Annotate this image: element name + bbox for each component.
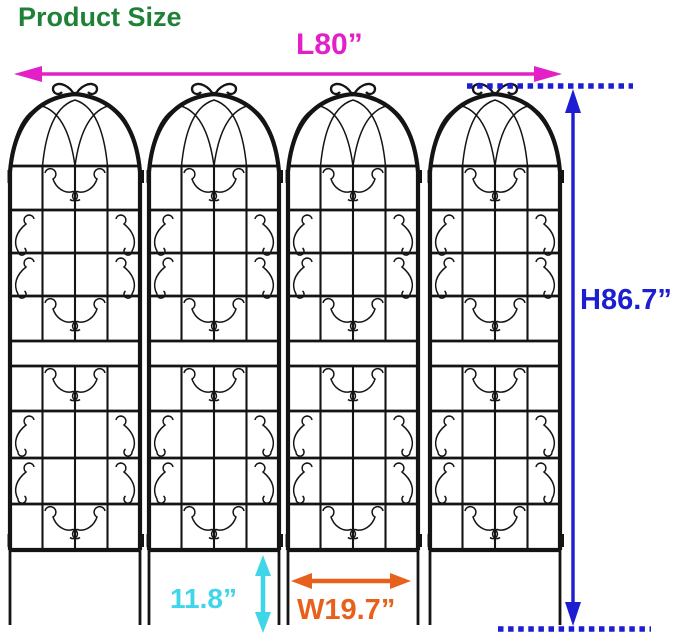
trellis-panel-1 bbox=[8, 84, 145, 625]
product-size-diagram: Product Size L80” H86.7” 11.8” W19.7” bbox=[0, 0, 679, 634]
trellis-illustration bbox=[0, 0, 679, 634]
trellis-panel-4 bbox=[428, 84, 565, 625]
leg-height-arrow bbox=[255, 555, 271, 633]
length-arrow bbox=[14, 66, 562, 82]
trellis-panel-2 bbox=[147, 84, 284, 625]
trellis-panel-3 bbox=[286, 84, 423, 625]
width-arrow bbox=[291, 573, 411, 589]
height-arrow bbox=[565, 89, 581, 626]
